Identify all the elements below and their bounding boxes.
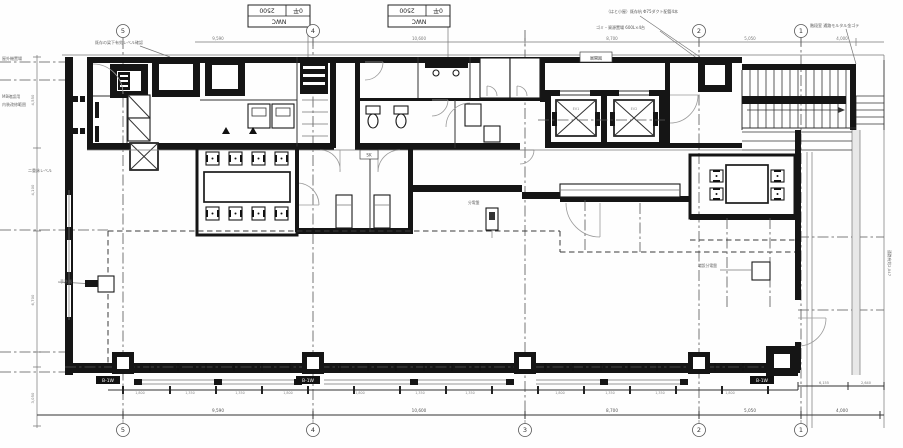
- floor-plan-svg: 25000平NWC25000平NWC 542154321 B-1WB-1WB-1…: [0, 0, 903, 448]
- drawing-text: 階段室 通路モルタル金ゴテ: [810, 22, 859, 28]
- title-block-cell: 0平: [433, 7, 443, 14]
- drawing-text: 8,700: [606, 408, 618, 413]
- drawing-text: 4,100: [30, 184, 35, 195]
- corridor: [87, 150, 742, 237]
- floor-plan-page: 25000平NWC25000平NWC 542154321 B-1WB-1WB-1…: [0, 0, 903, 448]
- grid-bubble-label: 5: [121, 426, 125, 434]
- wc-fixtures: [366, 104, 500, 142]
- drawing-text: MB確認用: [2, 93, 20, 99]
- elevator-bank: [538, 90, 670, 148]
- drawing-text: EV1: [573, 107, 580, 111]
- grid-bubble-label: 3: [523, 426, 527, 434]
- drawing-text: 1,350: [235, 391, 244, 395]
- drawing-text: 内装改修範囲: [2, 101, 26, 107]
- drawing-text: 分電盤: [468, 200, 480, 205]
- drawing-text: 1,800: [725, 391, 734, 395]
- grid-bubble-label: 2: [697, 27, 701, 35]
- grid-bubble-label: 5: [121, 27, 125, 35]
- drawing-text: 10,600: [412, 36, 426, 41]
- drawing-text: 8,700: [606, 36, 618, 41]
- drawing-text: 1,350: [465, 391, 474, 395]
- title-blocks: 25000平NWC25000平NWC: [248, 5, 450, 27]
- lobby-block: [665, 57, 742, 148]
- drawing-text: 1,800: [283, 391, 292, 395]
- title-block-cell: 0平: [293, 7, 303, 14]
- grid-bubble-label: 2: [697, 426, 701, 434]
- open-office-area: [85, 200, 795, 365]
- drawing-text: ゴミ・資源置場 600L×4台: [596, 24, 645, 30]
- meeting-room-right: [690, 155, 795, 220]
- drawing-text: 二重床レベル: [28, 167, 52, 173]
- meeting-room-left: [197, 148, 319, 235]
- drawing-text: 3,050: [30, 392, 35, 403]
- drawing-text: 6,155: [819, 381, 829, 385]
- drawing-text: 5,050: [744, 36, 756, 41]
- title-block-cell: NWC: [272, 18, 287, 25]
- drawing-text: 手洗器: [60, 278, 72, 284]
- wall-type-badge-label: B-1W: [302, 378, 315, 384]
- boxed-label-text: SK: [366, 153, 372, 158]
- title-block-cell: NWC: [412, 18, 427, 25]
- drawing-text: 屋外機置場: [2, 55, 22, 61]
- drawing-text: 1,800: [135, 391, 144, 395]
- drawing-text: 1,350: [655, 391, 664, 395]
- drawing-text: 1,800: [555, 391, 564, 395]
- wall-type-badge-label: B-1W: [756, 378, 769, 384]
- drawing-text: 2,640: [861, 381, 871, 385]
- wall-type-badge-label: B-1W: [102, 378, 115, 384]
- drawing-text: 10,600: [412, 408, 427, 413]
- drawing-text: 1,350: [185, 391, 194, 395]
- grid-bubble-label: 1: [799, 27, 803, 35]
- grid-bubble-label: 1: [799, 426, 803, 434]
- drawing-text: 1,350: [605, 391, 614, 395]
- drawing-text: 6,700: [30, 294, 35, 305]
- drawing-text: 1,800: [355, 391, 364, 395]
- drawing-text: （はと小屋）既存杭 Φ75ダクト配管4本: [606, 8, 678, 14]
- dimension-lines: [37, 382, 884, 424]
- drawing-text: 既存の梁下有効レベル確認: [95, 39, 143, 45]
- drawing-text: 9,590: [212, 36, 224, 41]
- title-block-cell: 2500: [399, 7, 414, 14]
- drawing-text: 4,000: [836, 408, 848, 413]
- drawing-text: 4,000: [836, 36, 848, 41]
- sill-line: [134, 379, 688, 385]
- grid-bubble-label: 4: [311, 426, 315, 434]
- toilet-block: [355, 57, 545, 164]
- drawing-text: 9,590: [212, 408, 224, 413]
- boxed-label-text: 展開図: [590, 55, 602, 61]
- drawing-text: 5,050: [744, 408, 756, 413]
- drawing-text: EV2: [631, 107, 638, 111]
- title-block-cell: 2500: [259, 7, 274, 14]
- staircase: [742, 64, 856, 130]
- drawing-text: 1,350: [415, 391, 424, 395]
- drawing-text: 増設分電盤: [698, 263, 717, 268]
- grid-bubble-label: 4: [311, 27, 315, 35]
- drawing-text: 通路有効2,047: [887, 250, 892, 277]
- drawing-text: 4,550: [30, 94, 35, 105]
